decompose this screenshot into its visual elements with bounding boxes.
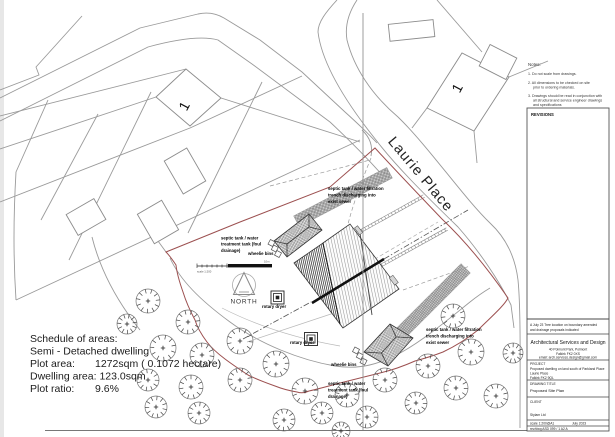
svg-text:3. Drawings should be read in: 3. Drawings should be read in conjunctio… — [528, 94, 602, 98]
svg-text:9.6%: 9.6% — [95, 383, 119, 395]
svg-text:2. All dimensions to be check: 2. All dimensions to be checked on site — [528, 81, 590, 85]
svg-text:exist sewer: exist sewer — [426, 340, 449, 345]
svg-text:prior to ordering materials.: prior to ordering materials. — [533, 86, 575, 90]
svg-text:Stylam Ltd: Stylam Ltd — [530, 413, 546, 417]
svg-text:wheelie bins: wheelie bins — [247, 251, 274, 256]
svg-text:REVISIONS: REVISIONS — [531, 112, 554, 117]
svg-text:wheelie bins: wheelie bins — [330, 362, 357, 367]
svg-text:July 2023: July 2023 — [572, 422, 586, 426]
svg-text:septic tank / water filtration: septic tank / water filtration — [426, 327, 482, 332]
svg-text:treatment tank (foul: treatment tank (foul — [221, 242, 261, 247]
svg-text:10m: 10m — [264, 260, 270, 264]
svg-text:scale 1:200: scale 1:200 — [197, 270, 212, 274]
svg-text:and drainage proposals indicat: and drainage proposals indicated — [530, 328, 579, 332]
svg-text:and specifications: and specifications — [533, 103, 562, 107]
svg-text:trench discharging into: trench discharging into — [426, 334, 474, 339]
svg-text:Schedule of areas:: Schedule of areas: — [30, 333, 118, 345]
svg-text:scale 1:200@A1: scale 1:200@A1 — [530, 422, 554, 426]
svg-text:Plot ratio:: Plot ratio: — [30, 383, 74, 395]
svg-text:DRAWING TITLE: DRAWING TITLE — [530, 382, 556, 386]
svg-text:Notes:: Notes: — [528, 62, 541, 67]
svg-text:rotary dryer: rotary dryer — [290, 340, 314, 345]
svg-text:Proposed dwelling on land sout: Proposed dwelling on land south of Parkl… — [530, 367, 605, 371]
svg-text:40 Polmont Park, Polmont: 40 Polmont Park, Polmont — [549, 348, 587, 352]
svg-text:drainage): drainage) — [221, 248, 241, 253]
svg-text:Architectural Services and Des: Architectural Services and Design — [530, 340, 605, 346]
svg-text:exist sewer: exist sewer — [328, 199, 351, 204]
svg-text:Proposed Site Plan: Proposed Site Plan — [530, 388, 564, 393]
svg-text:all structural and service eng: all structural and service engineer draw… — [533, 99, 602, 103]
svg-text:treatment tank (foul: treatment tank (foul — [328, 388, 368, 393]
svg-text:trench discharging into: trench discharging into — [328, 193, 376, 198]
svg-text:Dwelling area: 123.0sqm: Dwelling area: 123.0sqm — [30, 371, 146, 383]
svg-text:septic tank / water filtration: septic tank / water filtration — [328, 186, 384, 191]
svg-text:Plot area:: Plot area: — [30, 358, 75, 370]
svg-text:PROJECT: PROJECT — [530, 362, 545, 366]
svg-text:CLIENT: CLIENT — [530, 400, 542, 404]
svg-text:drainage): drainage) — [328, 394, 348, 399]
svg-text:Laurie Place: Laurie Place — [530, 372, 548, 376]
svg-text:septic tank / water: septic tank / water — [221, 236, 259, 241]
svg-text:Semi - Detached dwelling: Semi - Detached dwelling — [30, 346, 149, 358]
svg-text:rev/dwg ASD 099 / 1 A2 A: rev/dwg ASD 099 / 1 A2 A — [530, 427, 569, 431]
svg-text:NORTH: NORTH — [231, 299, 258, 306]
svg-text:rotary dryer: rotary dryer — [262, 304, 286, 309]
svg-text:septic tank / water: septic tank / water — [328, 381, 366, 386]
svg-text:1272sqm ( 0.1072 hectare): 1272sqm ( 0.1072 hectare) — [95, 358, 221, 370]
svg-text:A July 23 Tree location on b: A July 23 Tree location on boundary amen… — [530, 323, 597, 327]
svg-text:Falkirk FK2 9QL: Falkirk FK2 9QL — [530, 376, 554, 380]
svg-text:1. Do not scale from drawings: 1. Do not scale from drawings. — [528, 72, 577, 76]
svg-text:email: arch.services.design@gm: email: arch.services.design@gmail.com — [539, 356, 597, 360]
